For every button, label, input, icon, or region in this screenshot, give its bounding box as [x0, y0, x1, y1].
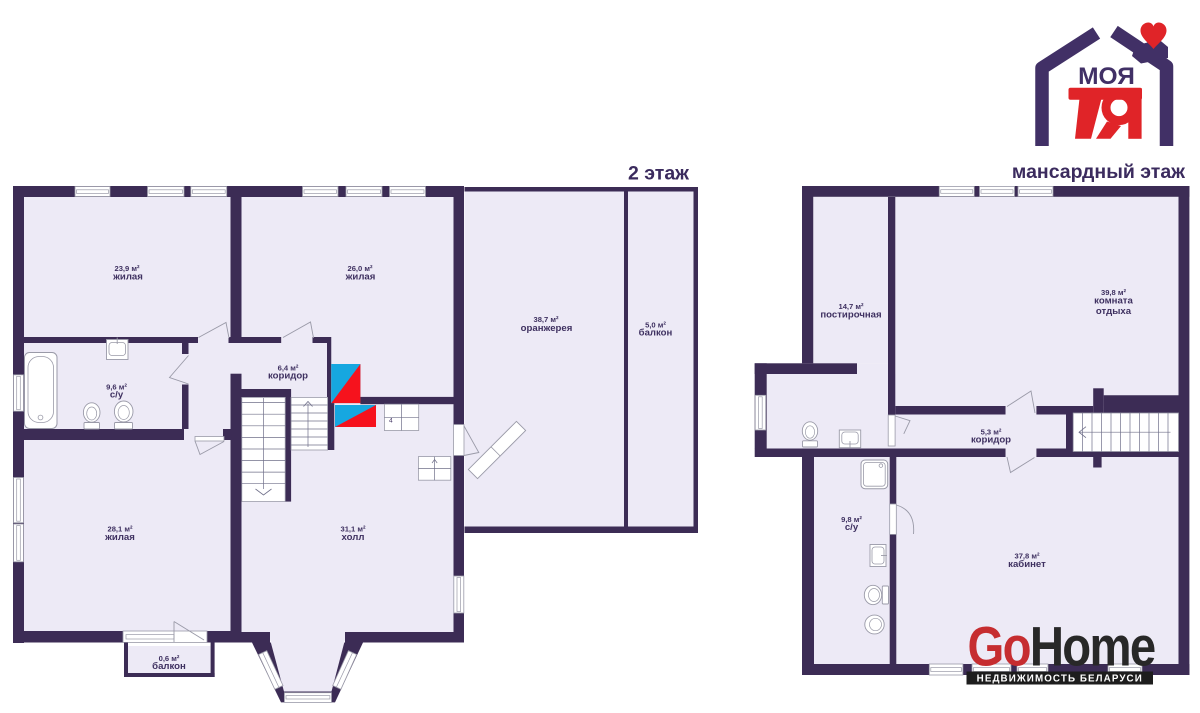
svg-text:НЕДВИЖИМОСТЬ БЕЛАРУСИ: НЕДВИЖИМОСТЬ БЕЛАРУСИ [977, 674, 1143, 685]
svg-text:комната: комната [1094, 296, 1133, 307]
svg-text:балкон: балкон [152, 661, 186, 672]
svg-text:жилая: жилая [345, 272, 376, 283]
svg-text:4: 4 [389, 418, 393, 425]
svg-text:с/у: с/у [845, 522, 859, 533]
svg-text:GoHome: GoHome [968, 615, 1156, 678]
svg-text:коридор: коридор [971, 435, 1011, 446]
svg-text:постирочная: постирочная [820, 310, 881, 321]
svg-text:балкон: балкон [639, 328, 673, 339]
svg-text:мансардный этаж: мансардный этаж [1012, 161, 1185, 183]
svg-text:отдыха: отдыха [1096, 306, 1132, 317]
svg-text:МОЯ: МОЯ [1078, 63, 1135, 90]
svg-text:коридор: коридор [268, 371, 308, 382]
svg-text:оранжерея: оранжерея [521, 323, 573, 334]
svg-text:кабинет: кабинет [1008, 559, 1046, 570]
svg-text:жилая: жилая [104, 532, 135, 543]
svg-text:жилая: жилая [112, 272, 143, 283]
svg-text:2 этаж: 2 этаж [628, 163, 689, 185]
svg-text:холл: холл [342, 532, 365, 543]
svg-text:с/у: с/у [110, 390, 124, 401]
